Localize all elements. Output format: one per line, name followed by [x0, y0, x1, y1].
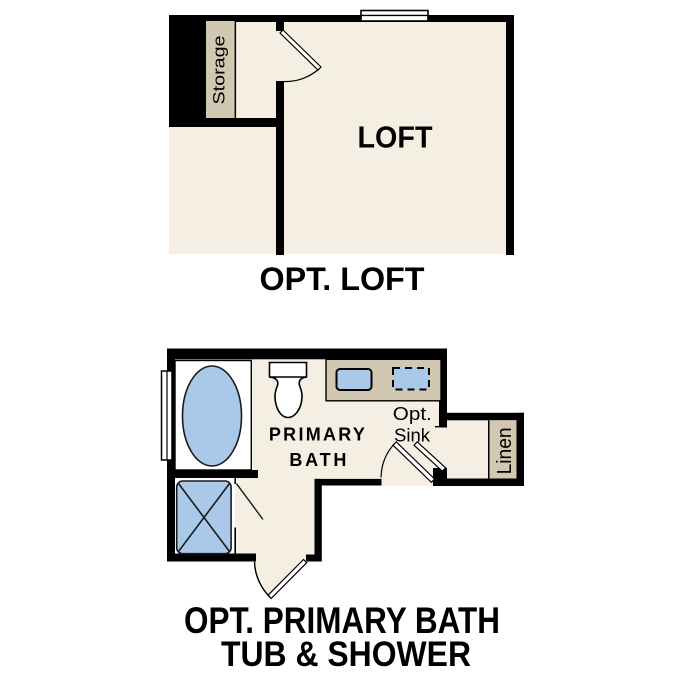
- svg-text:LOFT: LOFT: [358, 121, 433, 155]
- svg-text:Storage: Storage: [210, 36, 229, 105]
- svg-text:OPT. LOFT: OPT. LOFT: [260, 261, 425, 297]
- svg-text:Sink: Sink: [394, 425, 431, 446]
- svg-text:TUB & SHOWER: TUB & SHOWER: [221, 634, 471, 674]
- svg-text:Opt.: Opt.: [393, 403, 432, 424]
- svg-text:PRIMARY: PRIMARY: [269, 425, 365, 445]
- svg-text:Linen: Linen: [494, 427, 516, 474]
